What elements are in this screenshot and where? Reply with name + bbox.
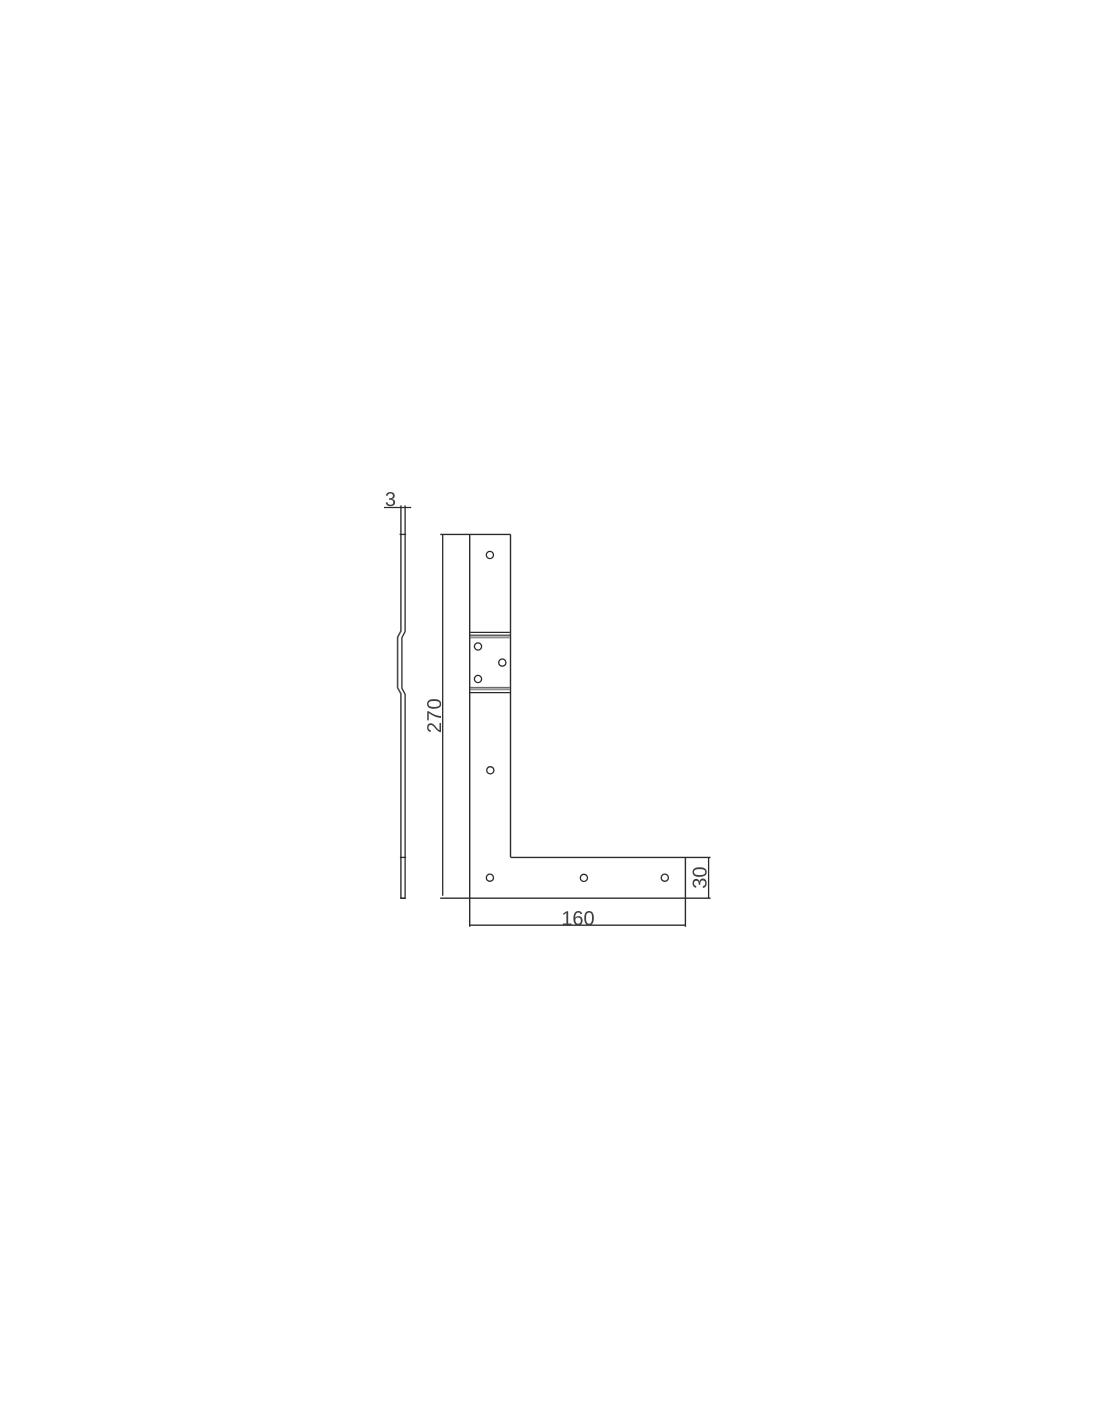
- svg-text:160: 160: [561, 908, 594, 930]
- svg-text:270: 270: [424, 698, 446, 733]
- svg-text:3: 3: [385, 489, 396, 511]
- svg-text:30: 30: [690, 866, 712, 888]
